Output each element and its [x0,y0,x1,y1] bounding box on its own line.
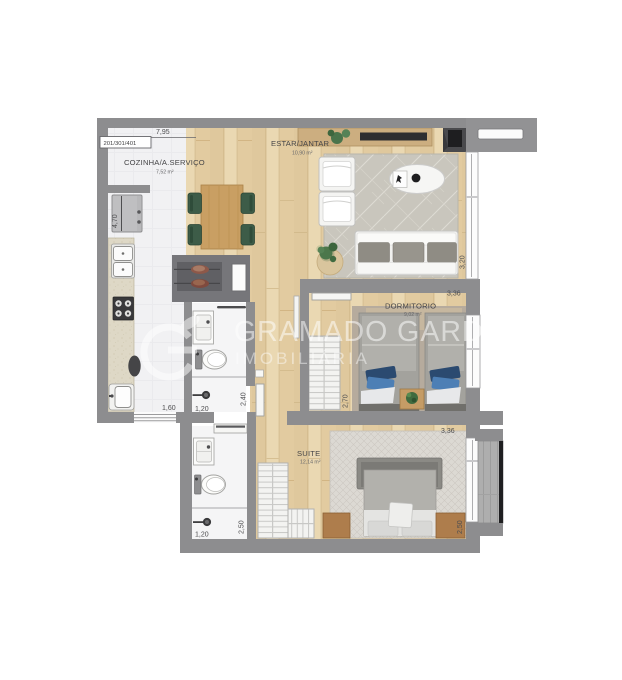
svg-text:ESTAR/JANTAR: ESTAR/JANTAR [271,139,330,148]
svg-text:2,70: 2,70 [343,394,350,408]
svg-text:7,52 m²: 7,52 m² [156,170,174,176]
svg-text:12,14 m²: 12,14 m² [300,460,321,466]
svg-text:2,50: 2,50 [239,520,246,534]
svg-text:10,90 m²: 10,90 m² [292,151,313,157]
svg-text:1,20: 1,20 [195,406,209,413]
svg-text:SUITE: SUITE [297,449,320,458]
svg-text:201/301/401: 201/301/401 [104,141,137,147]
svg-text:1,20: 1,20 [195,532,209,539]
svg-text:COZINHA/A.SERVIÇO: COZINHA/A.SERVIÇO [124,158,205,167]
svg-text:4,70: 4,70 [112,214,119,228]
svg-text:2,50: 2,50 [457,520,464,534]
svg-text:3,20: 3,20 [460,255,467,269]
svg-text:IMOBILIÁRIA: IMOBILIÁRIA [235,349,370,368]
svg-text:3,36: 3,36 [447,291,461,298]
svg-text:2,40: 2,40 [241,392,248,406]
svg-text:3,36: 3,36 [441,428,455,435]
svg-text:1,60: 1,60 [162,405,176,412]
svg-text:GRAMADO GARDEN: GRAMADO GARDEN [234,316,525,348]
svg-text:7,95: 7,95 [156,129,170,136]
svg-text:DORMITORIO: DORMITORIO [385,302,436,311]
